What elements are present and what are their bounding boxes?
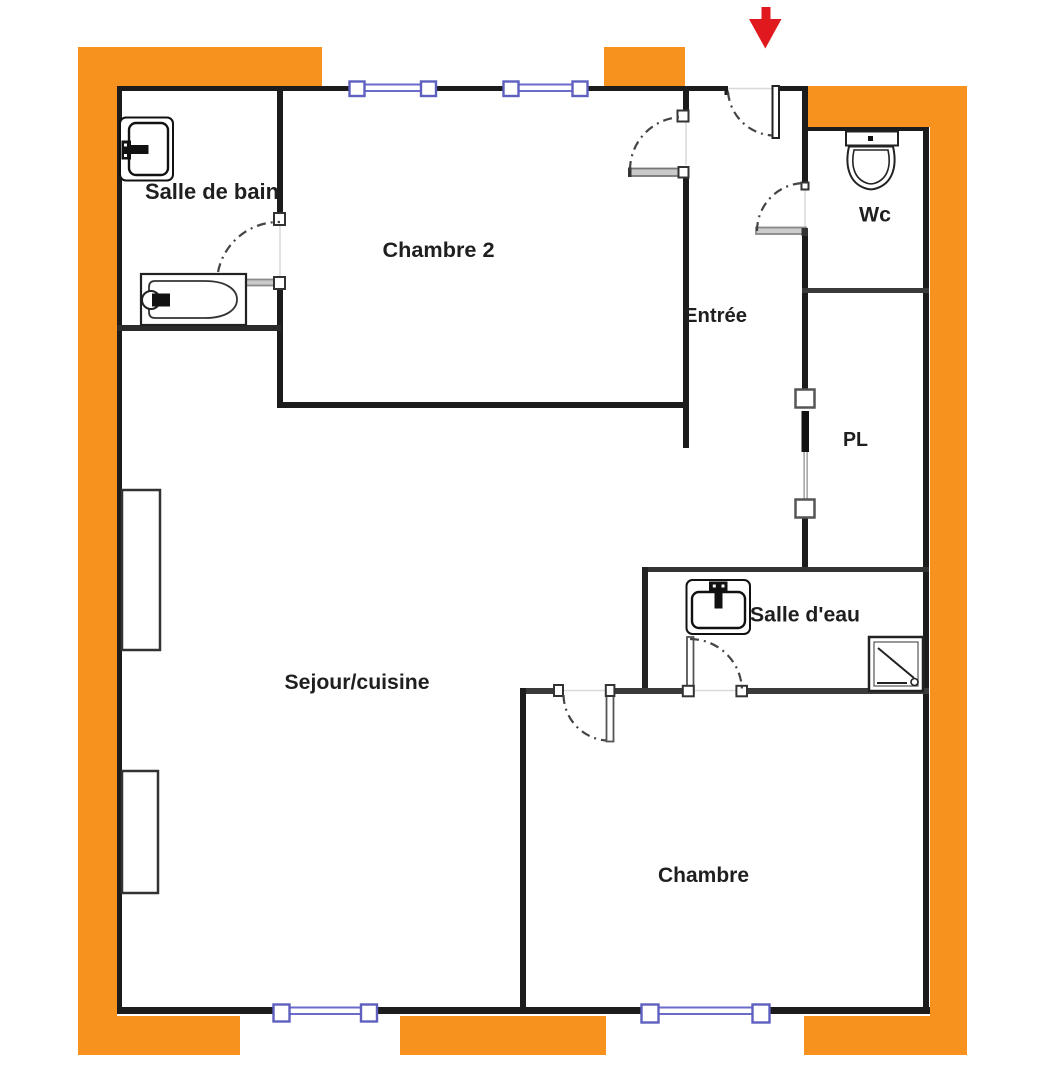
svg-text:Chambre: Chambre bbox=[658, 864, 749, 887]
svg-text:Salle de bain: Salle de bain bbox=[145, 179, 279, 204]
svg-text:Salle d'eau: Salle d'eau bbox=[750, 603, 860, 627]
svg-text:Chambre 2: Chambre 2 bbox=[383, 238, 495, 262]
svg-text:Wc: Wc bbox=[859, 203, 891, 227]
svg-text:Entrée: Entrée bbox=[684, 304, 747, 327]
svg-text:PL: PL bbox=[843, 429, 868, 451]
svg-text:Sejour/cuisine: Sejour/cuisine bbox=[285, 670, 430, 694]
